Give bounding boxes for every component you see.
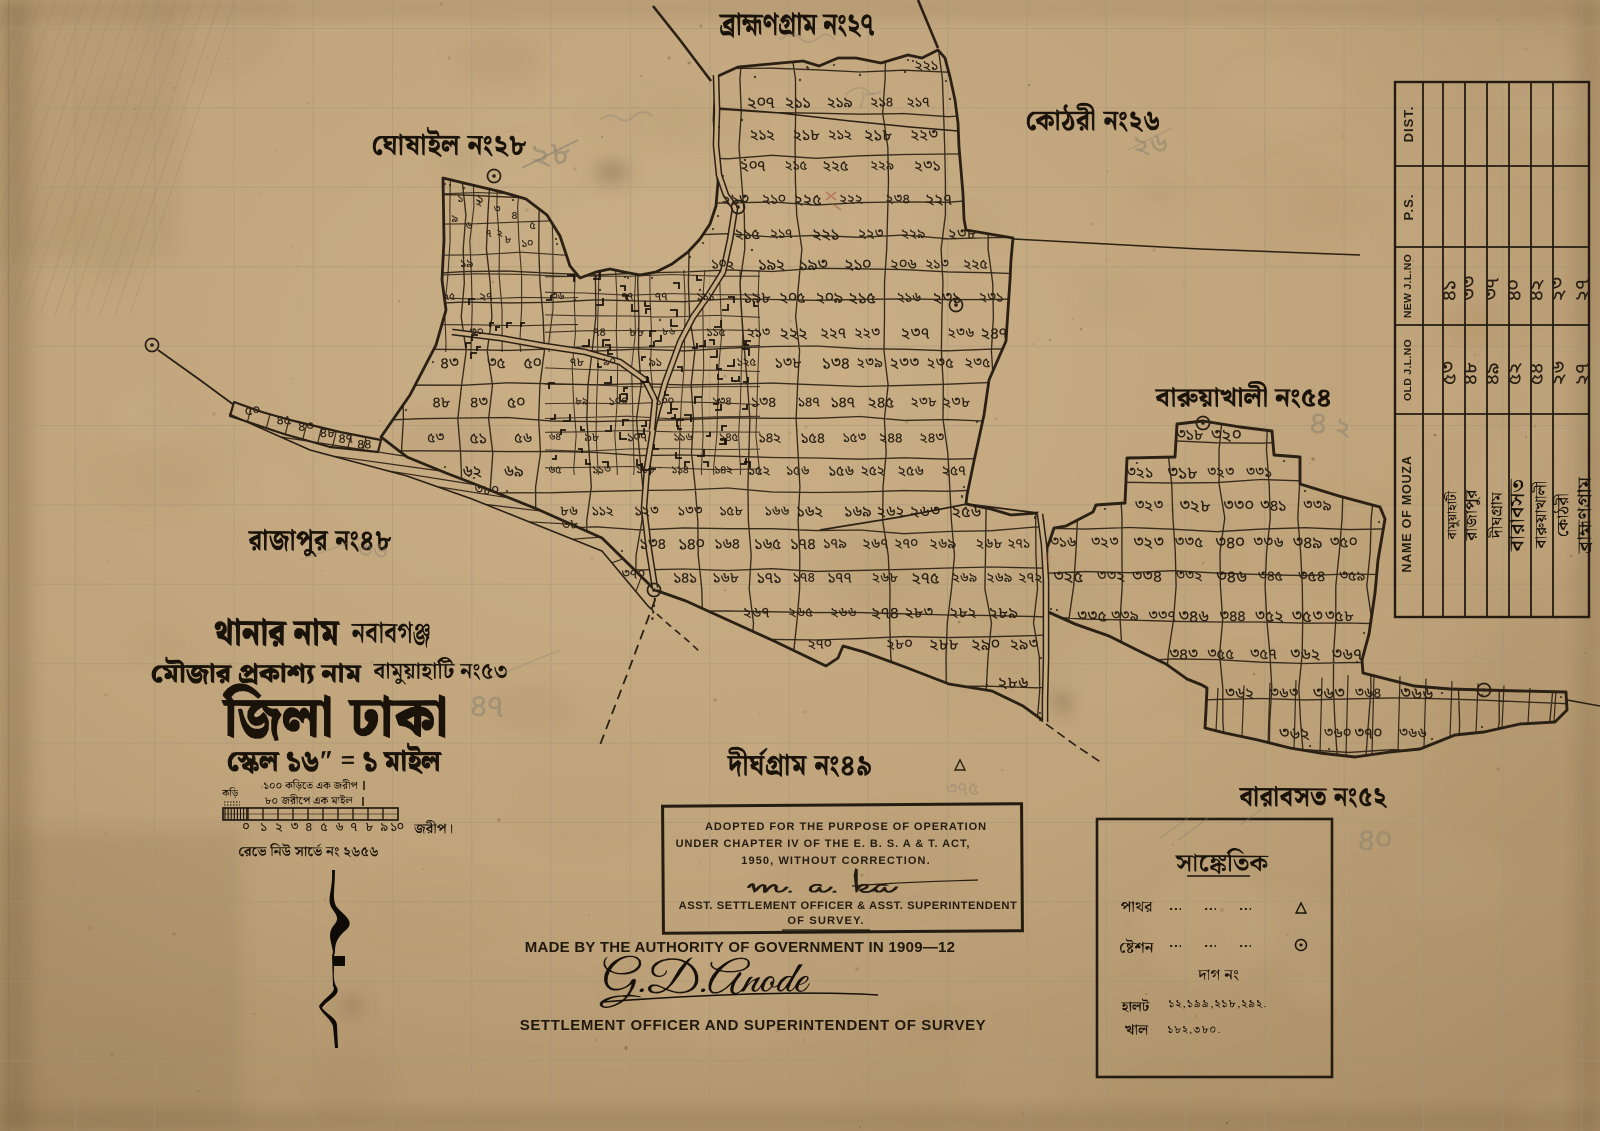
- svg-text:SETTLEMENT OFFICER AND SUPERIN: SETTLEMENT OFFICER AND SUPERINTENDENT OF…: [520, 1017, 987, 1034]
- svg-text:1950, WITHOUT CORRECTION.: 1950, WITHOUT CORRECTION.: [741, 855, 930, 867]
- svg-text:OLD J.L.NO: OLD J.L.NO: [1402, 339, 1414, 401]
- svg-text:ASST. SETTLEMENT OFFICER & ASS: ASST. SETTLEMENT OFFICER & ASST. SUPERIN…: [679, 900, 1018, 912]
- svg-text:ADOPTED FOR THE PURPOSE OF OPE: ADOPTED FOR THE PURPOSE OF OPERATION: [705, 821, 987, 833]
- svg-text:DIST.: DIST.: [1401, 106, 1416, 143]
- svg-text:UNDER CHAPTER IV OF THE E. B.: UNDER CHAPTER IV OF THE E. B. S. A & T. …: [676, 838, 971, 850]
- svg-text:NEW J.L.NO: NEW J.L.NO: [1402, 254, 1414, 318]
- svg-text:OF SURVEY.: OF SURVEY.: [787, 915, 864, 927]
- svg-text:P.S.: P.S.: [1401, 194, 1416, 221]
- svg-text:NAME OF MOUZA: NAME OF MOUZA: [1400, 455, 1414, 572]
- svg-text:MADE BY THE AUTHORITY OF GOVER: MADE BY THE AUTHORITY OF GOVERNMENT IN 1…: [525, 939, 955, 956]
